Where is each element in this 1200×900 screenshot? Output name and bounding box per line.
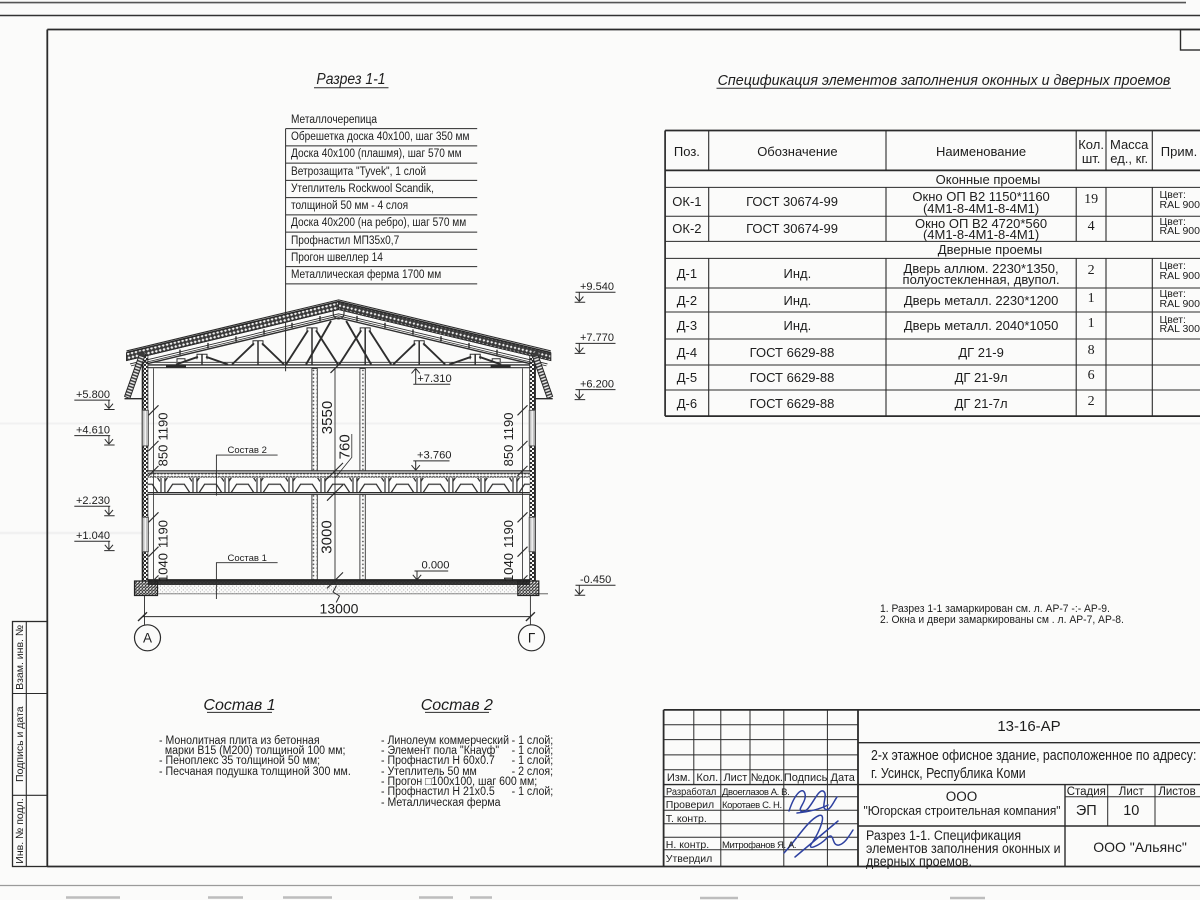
svg-text:0.000: 0.000 [422, 559, 450, 571]
svg-text:1190: 1190 [501, 413, 516, 441]
svg-text:+5.800: +5.800 [76, 389, 110, 401]
svg-text:1190: 1190 [156, 413, 171, 441]
svg-text:3000: 3000 [319, 520, 336, 553]
svg-text:Взам. инв. №: Взам. инв. № [14, 625, 26, 690]
svg-text:+7.770: +7.770 [580, 332, 614, 344]
svg-text:А: А [143, 631, 152, 646]
svg-text:+7.310: +7.310 [417, 373, 452, 385]
svg-text:+3.760: +3.760 [417, 449, 452, 461]
svg-text:1190: 1190 [501, 520, 516, 548]
svg-text:Инв. № подл.: Инв. № подл. [14, 798, 26, 863]
svg-text:+2.230: +2.230 [76, 495, 110, 507]
svg-text:850: 850 [156, 445, 171, 467]
svg-text:3550: 3550 [319, 401, 336, 434]
svg-text:+9.540: +9.540 [580, 281, 614, 293]
svg-text:+1.040: +1.040 [76, 530, 110, 542]
svg-text:Подпись и дата: Подпись и дата [14, 706, 26, 782]
svg-text:1190: 1190 [156, 520, 171, 548]
svg-text:1040: 1040 [156, 553, 171, 582]
svg-text:-0.450: -0.450 [580, 574, 611, 586]
svg-text:760: 760 [337, 434, 354, 459]
svg-text:1040: 1040 [501, 553, 516, 582]
svg-text:850: 850 [501, 445, 516, 467]
svg-text:13000: 13000 [320, 601, 359, 617]
svg-text:+4.610: +4.610 [76, 424, 110, 436]
svg-text:Г: Г [528, 631, 536, 646]
svg-text:+6.200: +6.200 [580, 378, 614, 390]
